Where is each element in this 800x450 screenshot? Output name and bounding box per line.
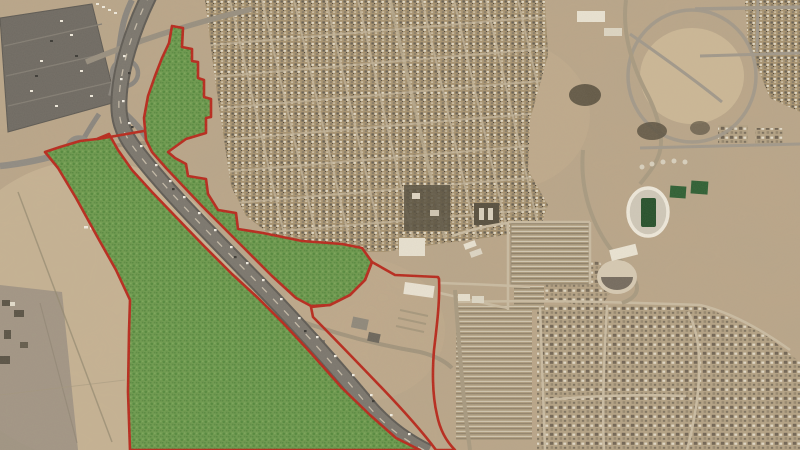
image-grain — [0, 0, 800, 450]
satellite-canvas — [0, 0, 800, 450]
satellite-map-view — [0, 0, 800, 450]
